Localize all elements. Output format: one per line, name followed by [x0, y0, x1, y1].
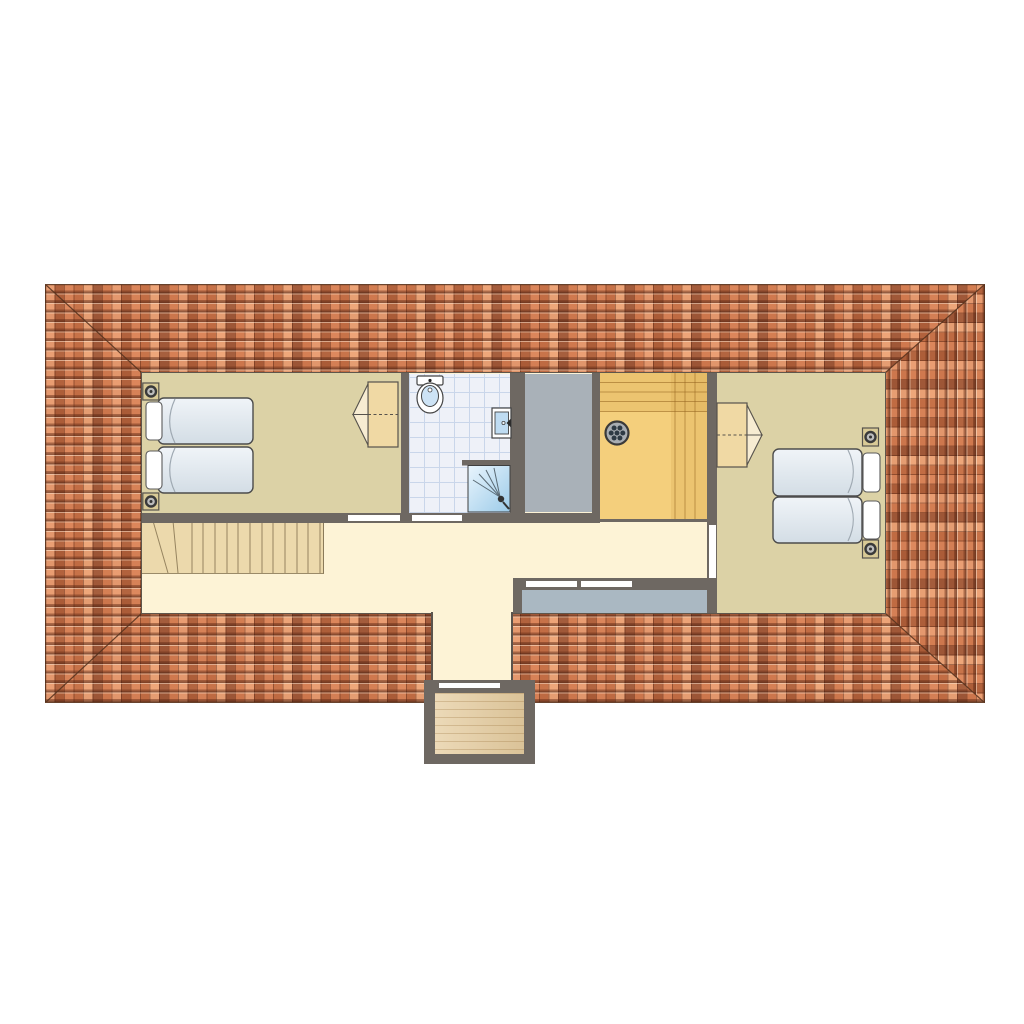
staircase [142, 521, 324, 574]
door-bathroom [412, 515, 462, 522]
bedroom-right [717, 373, 885, 613]
wall-void-sauna [592, 373, 600, 523]
rear-gray-band [522, 590, 707, 613]
balcony-door [439, 683, 500, 688]
balcony [424, 680, 535, 764]
balcony-wood-deck [435, 693, 524, 754]
wall-rear-band-stub [513, 578, 522, 613]
wall-bathroom-right [510, 373, 525, 523]
floor-interior [142, 373, 885, 613]
rear-window-1 [526, 581, 577, 587]
door-bedroom-right [709, 525, 716, 578]
bedroom-left [142, 373, 401, 513]
corridor [431, 612, 513, 682]
door-bedroom-left [348, 515, 400, 522]
void-room [525, 374, 592, 512]
stair-treads [142, 521, 323, 573]
rear-window-2 [581, 581, 632, 587]
bathroom [409, 374, 510, 513]
wall-bathroom-left [401, 373, 409, 523]
floorplan-canvas [0, 0, 1024, 1024]
sauna [600, 373, 707, 520]
